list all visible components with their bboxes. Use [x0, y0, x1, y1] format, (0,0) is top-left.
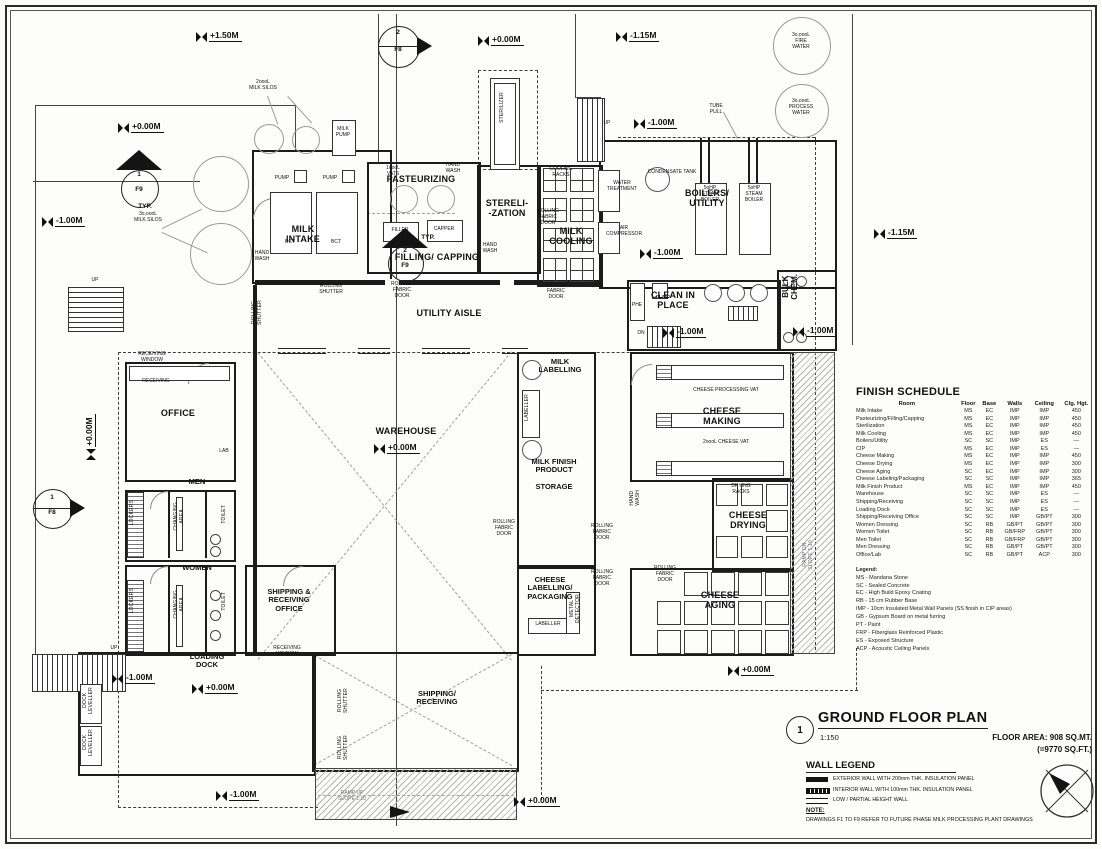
milk-silo-30000	[193, 156, 249, 212]
wall-swatch-exterior	[806, 777, 828, 782]
aging-rack	[738, 630, 762, 654]
schedule-cell: SC	[958, 469, 980, 477]
stairs-up	[577, 98, 605, 162]
section-arrow	[417, 37, 432, 55]
level-marker: +0.00M	[84, 414, 96, 460]
level-marker: +0.00M	[374, 442, 420, 454]
label-rolling-shutter-v1: ROLLING SHUTTER	[252, 300, 264, 325]
milk-silo-30000	[190, 223, 252, 285]
schedule-cell: Cheese Drying	[856, 461, 958, 469]
section-marker-2f9-sheet: F9	[401, 262, 409, 269]
schedule-cell: SC	[979, 499, 1000, 507]
level-marker: -1.00M	[112, 672, 155, 684]
schedule-cell: GB/PT	[1000, 544, 1030, 552]
level-marker: -1.00M	[634, 117, 677, 129]
level-flag-icon	[374, 444, 385, 454]
toilet-partition	[168, 490, 170, 558]
schedule-column-header: Floor	[958, 401, 980, 408]
schedule-cell: IMP	[1030, 469, 1059, 477]
aging-rack	[657, 630, 681, 654]
level-value: +0.00M	[387, 442, 420, 454]
level-value: -1.15M	[887, 227, 917, 239]
aging-rack	[765, 630, 789, 654]
level-value: +0.00M	[491, 34, 524, 46]
schedule-cell: SC	[979, 491, 1000, 499]
aging-rack	[684, 630, 708, 654]
schedule-cell: GB/PT	[1030, 522, 1059, 530]
schedule-cell: SC	[958, 491, 980, 499]
schedule-cell: SC	[958, 438, 980, 446]
section-marker-1f9-sheet: F9	[135, 186, 143, 193]
schedule-cell: Men Toilet	[856, 537, 958, 545]
room-label-cheese-making: CHEESE MAKING	[703, 406, 741, 426]
schedule-cell: RB	[979, 537, 1000, 545]
label-rolling-fabric-door-6: ROLLING FABRIC DOOR	[591, 570, 613, 588]
level-flag-icon	[42, 217, 53, 227]
level-flag-icon	[514, 797, 525, 807]
room-label-cheese-drying: CHEESE DRYING	[729, 510, 767, 530]
room-label-shipping-receiving: SHIPPING/ RECEIVING	[416, 690, 457, 707]
level-flag-icon	[216, 791, 227, 801]
boiler-pipe	[748, 138, 750, 184]
boiler-pipe	[708, 138, 710, 184]
floor-plan-sheet: MILK INTAKEPASTEURIZINGSTERELI- -ZATIONF…	[0, 0, 1102, 849]
label-bct-2: BCT	[331, 240, 341, 246]
schedule-cell: MS	[958, 423, 980, 431]
label-pump-2: PUMP	[323, 176, 337, 182]
toilet-fixture	[210, 630, 221, 641]
room-label-shipping-receiving-office: SHIPPING & RECEIVING OFFICE	[267, 588, 310, 613]
schedule-cell: SC	[958, 529, 980, 537]
label-rolling-shutter-v2: ROLLING SHUTTER	[338, 688, 350, 713]
schedule-legend-item: GB - Gypsum Board on metal furring	[856, 614, 1094, 622]
level-value: +1.50M	[209, 30, 242, 42]
future-phase-line	[541, 690, 858, 691]
schedule-cell: IMP	[1000, 469, 1030, 477]
schedule-cell: SC	[958, 514, 980, 522]
level-flag-icon	[478, 36, 489, 46]
schedule-cell: RB	[979, 552, 1000, 560]
schedule-cell: MS	[958, 431, 980, 439]
schedule-cell: ES	[1030, 438, 1059, 446]
schedule-column-header: Walls	[1000, 401, 1030, 408]
label-fire-water: 3o,oooL FIRE WATER	[792, 33, 810, 51]
level-value: -1.15M	[629, 30, 659, 42]
cheese-vat	[670, 365, 784, 380]
schedule-legend-item: ACP - Acoustic Ceiling Panels	[856, 646, 1094, 654]
schedule-cell: Pasteurizing/Filling/Capping	[856, 416, 958, 424]
label-dock-leveller-2: DOCK LEVELLER	[83, 729, 95, 756]
schedule-cell: Men Dressing	[856, 544, 958, 552]
label-rolling-fabric-door-3: ROLLING FABRIC DOOR	[545, 283, 567, 301]
drying-rack	[716, 536, 738, 558]
schedule-cell: 450	[1059, 431, 1094, 439]
finish-schedule-title: FINISH SCHEDULE	[856, 386, 1094, 398]
drying-rack	[766, 510, 788, 532]
schedule-cell: IMP	[1030, 423, 1059, 431]
centerline	[118, 807, 318, 808]
schedule-cell: IMP	[1030, 408, 1059, 416]
schedule-cell: EC	[979, 446, 1000, 454]
schedule-cell: Cheese Making	[856, 453, 958, 461]
north-arrow-icon	[1038, 762, 1096, 825]
label-hand-wash-1: HAND WASH	[446, 163, 461, 175]
schedule-cell: Sterilization	[856, 423, 958, 431]
schedule-cell: —	[1059, 499, 1094, 507]
schedule-cell: GB/FRP	[1000, 537, 1030, 545]
schedule-cell: IMP	[1000, 461, 1030, 469]
schedule-cell: Women Dressing	[856, 522, 958, 530]
ramp-down	[790, 352, 835, 654]
milk-silo	[292, 126, 320, 154]
schedule-legend-item: IMP - 10cm Insulated Metal Wall Panels (…	[856, 606, 1094, 614]
label-receiving-window-1: RECEIVING WINDOW	[138, 352, 166, 364]
schedule-cell: IMP	[1030, 453, 1059, 461]
wall-swatch-interior	[806, 788, 830, 794]
schedule-cell: Office/Lab	[856, 552, 958, 560]
room-label-sterilization: STERELI- -ZATION	[486, 198, 529, 218]
schedule-cell: IMP	[1030, 461, 1059, 469]
schedule-cell: SC	[979, 438, 1000, 446]
room-label-office: OFFICE	[161, 408, 195, 418]
floor-area-ft: (=9770 SQ.FT.)	[1037, 745, 1092, 754]
label-pump-1: PUMP	[275, 176, 289, 182]
schedule-cell: Shipping/Receiving Office	[856, 514, 958, 522]
label-hand-wash-2: HAND WASH	[255, 251, 270, 263]
level-marker: -1.00M	[793, 325, 836, 337]
cheese-vat-end	[656, 461, 672, 476]
schedule-legend-item: MS - Mandana Stone	[856, 575, 1094, 583]
partial-height-wall	[502, 348, 528, 354]
level-flag-icon	[196, 32, 207, 42]
schedule-cell: Boilers/Utility	[856, 438, 958, 446]
aging-rack	[657, 601, 681, 625]
schedule-cell: IMP	[1000, 476, 1030, 484]
schedule-cell: IMP	[1030, 476, 1059, 484]
level-marker: -1.15M	[874, 227, 917, 239]
schedule-cell: 300	[1059, 544, 1094, 552]
toilet-fixture	[210, 590, 221, 601]
schedule-cell: GB/PT	[1030, 544, 1059, 552]
finish-schedule: FINISH SCHEDULE RoomFloorBaseWallsCeilin…	[856, 386, 1094, 654]
toilet-fixture	[210, 534, 221, 545]
label-rolling-fabric-door-2: ROLLING FABRIC DOOR	[537, 209, 559, 227]
finish-schedule-table: RoomFloorBaseWallsCeilingClg. Hgt. Milk …	[856, 401, 1094, 560]
level-marker: +0.00M	[192, 682, 238, 694]
label-hand-wash-4: HAND WASH	[630, 490, 642, 506]
aging-rack	[765, 572, 789, 596]
schedule-cell: IMP	[1000, 408, 1030, 416]
schedule-cell: SC	[958, 507, 980, 515]
site-line	[35, 105, 295, 106]
label-rolling-shutter-1: ROLLING SHUTTER	[319, 284, 343, 296]
label-typ-1: TYP.	[421, 234, 435, 241]
label-rolling-fabric-door-1: ROLLING FABRIC DOOR	[391, 282, 413, 300]
cheese-vat-end	[656, 413, 672, 428]
aging-rack	[711, 630, 735, 654]
schedule-cell: GB/PT	[1030, 514, 1059, 522]
schedule-cell: 300	[1059, 461, 1094, 469]
label-ramp-dn: RAMP DN SLOPE 1:10	[803, 540, 815, 570]
pasteurizing-vat	[427, 185, 455, 213]
schedule-cell: Milk Cooling	[856, 431, 958, 439]
drying-rack	[741, 536, 763, 558]
schedule-row: Cheese DryingMSECIMPIMP300	[856, 461, 1094, 469]
schedule-row: Cheese AgingSCECIMPIMP300	[856, 469, 1094, 477]
label-labeller-cheese: LABELLER	[535, 622, 560, 628]
label-condensate-tank: CONDENSATE TANK	[648, 170, 697, 176]
future-phase-line	[541, 666, 542, 800]
schedule-cell: SC	[958, 552, 980, 560]
label-cheese-vat-2000: 2oooL CHEESE VAT	[703, 440, 749, 446]
schedule-legend-item: EC - High Build Epoxy Coating	[856, 590, 1094, 598]
level-flag-icon	[793, 327, 804, 337]
schedule-row: Shipping/Receiving OfficeSCSCIMPGB/PT300	[856, 514, 1094, 522]
schedule-cell: ES	[1030, 491, 1059, 499]
label-dn-cip: DN	[637, 331, 644, 337]
schedule-row: Cheese Labeling/PackagingSCSCIMPIMP365	[856, 476, 1094, 484]
label-changing-area-women: CHANGING AREA	[174, 590, 186, 619]
finish-schedule-legend: Legend: MS - Mandana StoneSC - Sealed Co…	[856, 567, 1094, 655]
level-marker: -1.00M	[640, 247, 683, 259]
section-marker-2f8-num: 2	[396, 29, 400, 36]
schedule-cell: RB	[979, 529, 1000, 537]
level-flag-icon	[634, 119, 645, 129]
label-cheese-processing-vat: CHEESE PROCESSING VAT	[693, 388, 759, 394]
label-rolling-fabric-door-5: ROLLING FABRIC DOOR	[591, 524, 613, 542]
room-label-women: WOMEN	[182, 564, 212, 572]
site-line	[378, 14, 379, 162]
schedule-row: SterilizationMSECIMPIMP450	[856, 423, 1094, 431]
level-flag-icon	[118, 123, 129, 133]
section-line	[33, 181, 200, 182]
schedule-cell: EC	[979, 431, 1000, 439]
schedule-cell: GB/PT	[1030, 529, 1059, 537]
partial-height-wall	[278, 348, 326, 354]
schedule-cell: IMP	[1000, 431, 1030, 439]
level-marker: +0.00M	[728, 664, 774, 676]
schedule-cell: SC	[958, 476, 980, 484]
label-up-2: UP	[92, 278, 99, 284]
schedule-cell: ES	[1030, 446, 1059, 454]
label-vats-1000: 1oooL VATS	[386, 166, 400, 178]
schedule-cell: ES	[1030, 499, 1059, 507]
schedule-cell: EC	[979, 423, 1000, 431]
schedule-cell: EC	[979, 453, 1000, 461]
schedule-cell: 365	[1059, 476, 1094, 484]
level-value: +0.00M	[84, 414, 96, 447]
level-value: -1.00M	[653, 247, 683, 259]
note-title: NOTE:	[806, 808, 825, 814]
level-marker: -1.00M	[216, 789, 259, 801]
level-value: -1.00M	[676, 326, 706, 338]
label-bct-1: BCT	[285, 240, 295, 246]
schedule-row: Office/LabSCRBGB/PTACP300	[856, 552, 1094, 560]
label-dock-leveller-1: DOCK LEVELLER	[83, 687, 95, 714]
room-label-warehouse: WAREHOUSE	[376, 426, 437, 436]
level-flag-icon	[86, 449, 96, 460]
schedule-legend-item: PT - Paint	[856, 622, 1094, 630]
schedule-row: Boilers/UtilitySCSCIMPES—	[856, 438, 1094, 446]
label-steam-boiler-2: 5oHP STEAM BOILER	[745, 186, 763, 204]
schedule-cell: 450	[1059, 416, 1094, 424]
label-toilet-men: TOILET	[222, 505, 228, 524]
schedule-column-header: Clg. Hgt.	[1059, 401, 1094, 408]
schedule-cell: 300	[1059, 469, 1094, 477]
wall-legend-title: WALL LEGEND	[806, 760, 956, 773]
aging-rack	[738, 572, 762, 596]
label-drying-racks: DRYING RACKS	[731, 484, 750, 496]
schedule-cell: EC	[979, 484, 1000, 492]
label-pump-cip: PUMP	[656, 296, 670, 302]
label-air-compressor: AIR COMPRESSOR	[606, 226, 642, 238]
room-outline-sterilization	[477, 165, 541, 274]
label-steam-boiler-1: 5oHP STEAM BOILER	[701, 186, 719, 204]
schedule-cell: Cheese Aging	[856, 469, 958, 477]
drawing-number-bubble: 1	[786, 716, 814, 744]
schedule-cell: Cheese Labeling/Packaging	[856, 476, 958, 484]
pump-box	[294, 170, 307, 183]
schedule-cell: IMP	[1000, 507, 1030, 515]
schedule-cell: MS	[958, 416, 980, 424]
toilet-partition	[205, 565, 207, 652]
room-label-loading-dock: LOADING DOCK	[190, 653, 225, 670]
level-value: -1.00M	[229, 789, 259, 801]
label-lab: LAB	[219, 449, 228, 455]
schedule-cell: 450	[1059, 408, 1094, 416]
schedule-cell: MS	[958, 408, 980, 416]
schedule-column-header: Base	[979, 401, 1000, 408]
schedule-row: Cheese MakingMSECIMPIMP450	[856, 453, 1094, 461]
schedule-cell: SC	[958, 544, 980, 552]
schedule-cell: SC	[979, 507, 1000, 515]
drawing-title: GROUND FLOOR PLAN	[818, 710, 988, 729]
boiler-pipe	[700, 138, 702, 184]
schedule-legend-item: ES - Exposed Structure	[856, 638, 1094, 646]
schedule-cell: IMP	[1000, 499, 1030, 507]
stairs-up	[68, 287, 124, 332]
schedule-row: Men DressingSCRBGB/PTGB/PT300	[856, 544, 1094, 552]
level-flag-icon	[728, 666, 739, 676]
future-phase-line	[618, 137, 815, 138]
drawing-number: 1	[797, 725, 803, 736]
level-value: +0.00M	[741, 664, 774, 676]
section-marker-1f8-num: 1	[50, 494, 54, 501]
schedule-column-header: Ceiling	[1030, 401, 1059, 408]
schedule-cell: 300	[1059, 552, 1094, 560]
section-marker-1f8-sheet: F8	[48, 509, 56, 516]
partial-height-wall	[358, 348, 390, 354]
schedule-cell: GB/FRP	[1000, 529, 1030, 537]
schedule-cell: SC	[979, 514, 1000, 522]
schedule-row: Milk Finish ProductMSECIMPIMP450	[856, 484, 1094, 492]
floor-area: FLOOR AREA: 908 SQ.MT.	[992, 733, 1092, 742]
room-label-bulk-chem: BULK CHEM.	[781, 274, 799, 300]
schedule-row: Pasteurizing/Filling/CappingMSECIMPIMP45…	[856, 416, 1094, 424]
level-value: +0.00M	[205, 682, 238, 694]
section-marker-1f9-num: 1	[137, 171, 141, 178]
schedule-cell: 300	[1059, 537, 1094, 545]
label-milk-pump: MILK PUMP	[336, 127, 350, 139]
level-flag-icon	[112, 674, 123, 684]
level-flag-icon	[663, 328, 674, 338]
cip-tank	[727, 284, 745, 302]
level-value: -1.00M	[647, 117, 677, 129]
schedule-cell: IMP	[1030, 484, 1059, 492]
schedule-cell: Milk Finish Product	[856, 484, 958, 492]
cip-rack	[728, 306, 758, 321]
label-milk-silos-30000: 3o,oooL MILK SILOS	[134, 212, 162, 224]
schedule-legend-item: RB - 15 cm Rubber Base	[856, 598, 1094, 606]
partial-height-wall	[422, 348, 470, 354]
cooling-rack	[543, 258, 567, 282]
schedule-cell: Milk Intake	[856, 408, 958, 416]
aging-rack	[738, 601, 762, 625]
ramp-direction-arrow	[390, 806, 410, 818]
section-marker-2f9-num: 2	[403, 247, 407, 254]
level-marker: -1.00M	[42, 215, 85, 227]
label-labeller-milk: LABELLER	[525, 394, 531, 421]
label-typ-2: TYP.	[138, 203, 152, 210]
label-sterilizer: STERILIZER	[500, 92, 506, 123]
room-label-milk-cooling: MILK COOLING	[549, 226, 592, 246]
schedule-row: Women DressingSCRBGB/PTGB/PT300	[856, 522, 1094, 530]
schedule-cell: 300	[1059, 522, 1094, 530]
level-flag-icon	[640, 249, 651, 259]
level-marker: +0.00M	[478, 34, 524, 46]
schedule-cell: GB/PT	[1000, 522, 1030, 530]
schedule-cell: —	[1059, 446, 1094, 454]
level-flag-icon	[874, 229, 885, 239]
label-tube-pull: TUBE PULL	[709, 104, 722, 116]
room-label-cheese-labelling: CHEESE LABELLING/ PACKAGING	[527, 576, 572, 601]
label-receiving: RECEIVING	[142, 379, 170, 385]
wall-legend-item: EXTERIOR WALL WITH 200mm THK. INSULATION…	[833, 776, 974, 782]
schedule-row: WarehouseSCSCIMPES—	[856, 491, 1094, 499]
schedule-row: Women ToiletSCRBGB/FRPGB/PT300	[856, 529, 1094, 537]
level-value: -1.00M	[806, 325, 836, 337]
label-toilet-women: TOILET	[222, 592, 228, 611]
level-marker: +1.50M	[196, 30, 242, 42]
future-phase-line	[856, 648, 857, 690]
schedule-row: Loading DockSCSCIMPES—	[856, 507, 1094, 515]
schedule-cell: IMP	[1030, 431, 1059, 439]
level-value: +0.00M	[527, 795, 560, 807]
schedule-cell: IMP	[1000, 438, 1030, 446]
cheese-vat-end	[656, 365, 672, 380]
schedule-cell: MS	[958, 461, 980, 469]
cooling-rack	[570, 198, 594, 222]
label-process-water: 3o,oooL PROCESS WATER	[789, 99, 813, 117]
level-marker: +0.00M	[118, 121, 164, 133]
cooling-rack	[570, 258, 594, 282]
label-ramp-up: RAMP UP SLOPE 1:10	[338, 791, 366, 803]
schedule-column-header: Room	[856, 401, 958, 408]
room-label-cheese-aging: CHEESE AGING	[701, 590, 739, 610]
label-receiving-window-2: RECEIVING WINDOW	[273, 646, 301, 658]
section-marker-2f8-sheet: F8	[394, 46, 402, 53]
schedule-cell: EC	[979, 469, 1000, 477]
room-label-utility-aisle: UTILITY AISLE	[416, 308, 481, 318]
toilet-fixture	[210, 610, 221, 621]
schedule-cell: Warehouse	[856, 491, 958, 499]
cheese-vat	[670, 461, 784, 476]
label-metal-detector: METAL DETECTOR	[570, 594, 582, 623]
boiler-pipe	[756, 138, 758, 184]
wall	[253, 285, 257, 655]
label-up-1: UP	[604, 121, 611, 127]
cip-tank	[704, 284, 722, 302]
